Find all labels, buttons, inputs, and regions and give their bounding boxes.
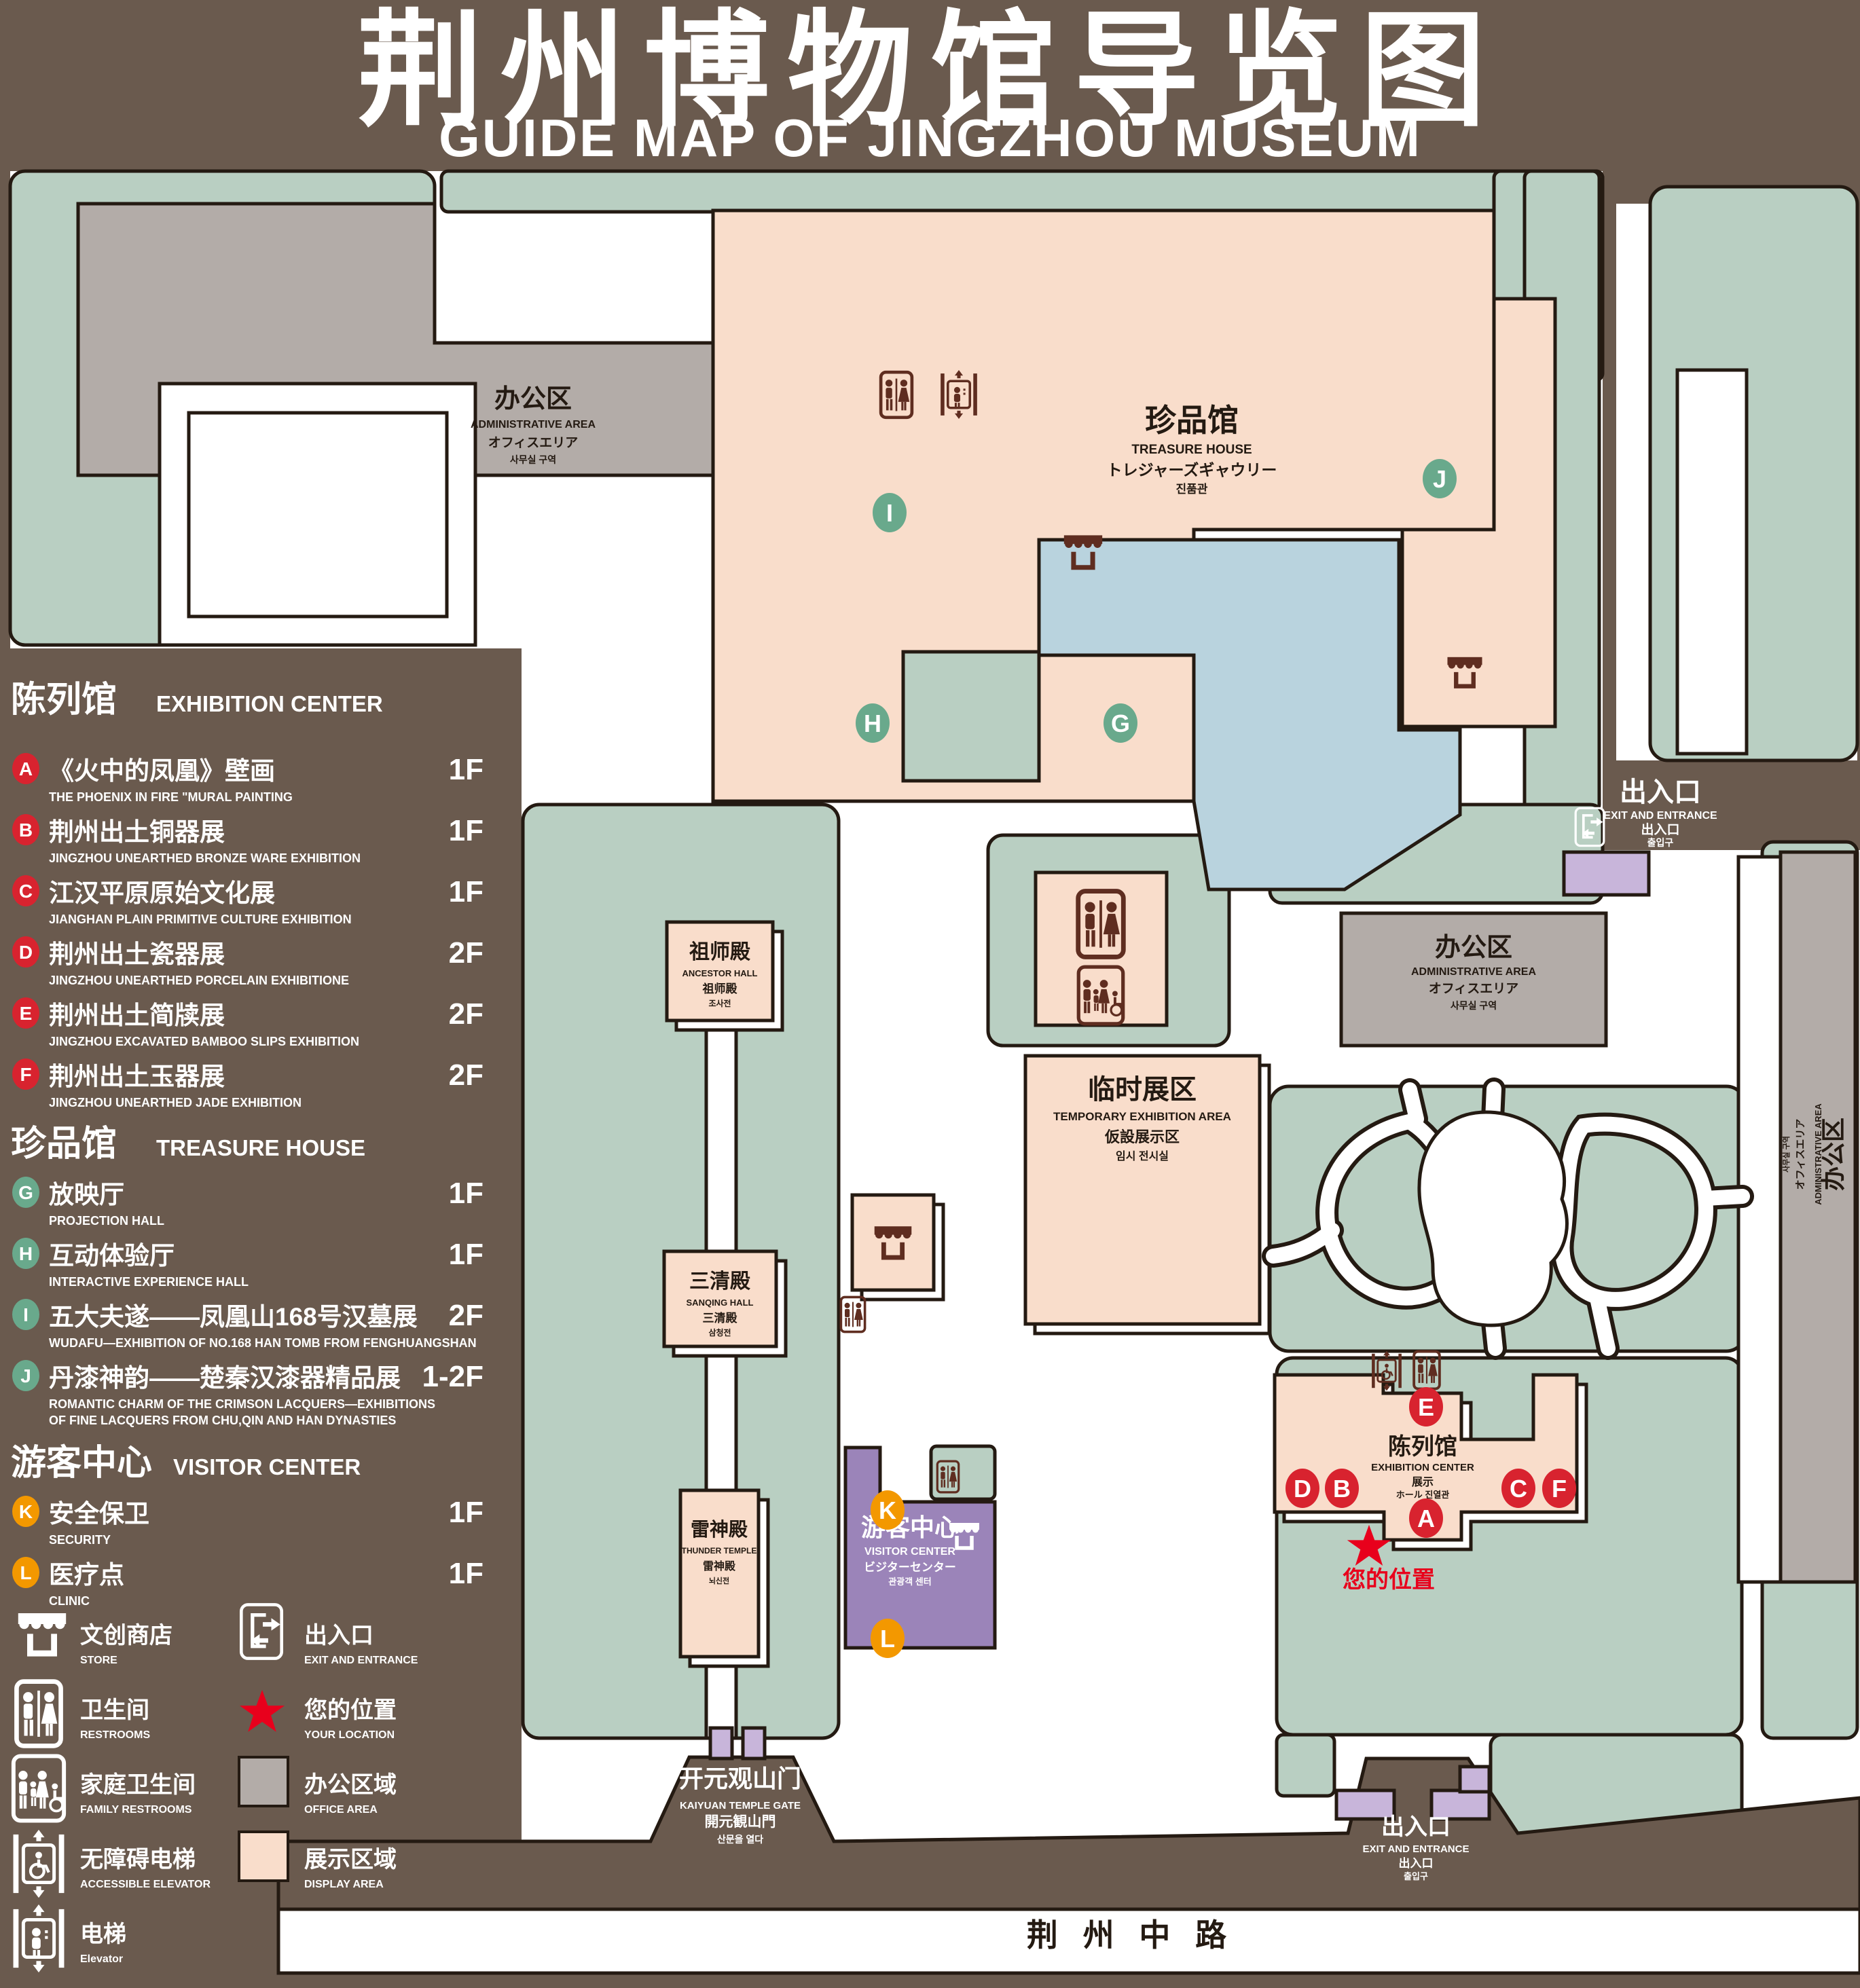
svg-text:卫生间: 卫生间 [80,1697,149,1723]
white-strip-right [1738,857,1781,1582]
legend-section-title-en: VISITOR CENTER [173,1454,361,1479]
svg-text:オフィスエリア: オフィスエリア [1795,1119,1806,1190]
road-label: 荆 州 中 路 [1027,1917,1235,1953]
svg-text:1F: 1F [449,875,484,908]
legend-item-L: L 医疗点 1F CLINIC [12,1557,484,1608]
svg-text:G: G [1111,710,1130,737]
svg-text:KAIYUAN TEMPLE GATE: KAIYUAN TEMPLE GATE [680,1800,801,1811]
admin-label-ja: オフィスエリア [488,436,579,450]
svg-text:B: B [19,820,33,841]
admin-label-ko: 사무실 구역 [510,454,556,465]
garden-pond [1419,1112,1567,1325]
svg-text:出入口: 出入口 [1641,822,1679,837]
svg-text:ホール 진열관: ホール 진열관 [1396,1490,1450,1500]
legend-section-title: 珍品馆 [11,1124,117,1164]
map-badge-A: A [1409,1498,1443,1538]
elevator-icon [14,1904,65,1972]
map-badge-C: C [1501,1469,1535,1508]
svg-text:办公区: 办公区 [1435,934,1512,962]
svg-text:DISPLAY AREA: DISPLAY AREA [304,1879,384,1890]
svg-text:CLINIC: CLINIC [49,1594,90,1608]
lawn-top-strip [441,171,1603,212]
svg-text:1F: 1F [449,814,484,847]
svg-text:B: B [1333,1475,1351,1503]
svg-text:2F: 2F [449,1059,484,1092]
svg-text:D: D [1294,1475,1311,1503]
svg-text:展示: 展示 [1412,1476,1434,1488]
svg-text:관광객 센터: 관광객 센터 [888,1577,931,1587]
your-location-label: 您的位置 [1343,1567,1435,1593]
svg-text:1F: 1F [449,1557,484,1590]
svg-text:뇌신전: 뇌신전 [709,1576,729,1585]
treasure-house-courtyard [903,652,1039,781]
legend-item-F: F 荆州出土玉器展 2F JINGZHOU UNEARTHED JADE EXH… [12,1059,484,1109]
svg-text:放映厅: 放映厅 [49,1181,124,1209]
svg-text:江汉平原原始文化展: 江汉平原原始文化展 [49,879,275,907]
svg-text:삼청전: 삼청전 [708,1327,731,1338]
exit-icon [241,1604,281,1658]
map-badge-F: F [1542,1469,1576,1508]
svg-text:C: C [1510,1475,1527,1503]
svg-text:三清殿: 三清殿 [689,1270,750,1293]
svg-text:办公区域: 办公区域 [304,1772,397,1798]
svg-text:JIANGHAN PLAIN PRIMITIVE CULTU: JIANGHAN PLAIN PRIMITIVE CULTURE EXHIBIT… [49,913,352,926]
svg-text:1F: 1F [449,1496,484,1529]
svg-text:ビジターセンター: ビジターセンター [864,1561,956,1574]
store-icon [18,1613,66,1653]
svg-text:您的位置: 您的位置 [304,1697,397,1723]
svg-text:開元観山門: 開元観山門 [705,1814,776,1830]
svg-text:RESTROOMS: RESTROOMS [80,1729,150,1741]
svg-text:YOUR LOCATION: YOUR LOCATION [304,1729,395,1741]
map-badge-G: G [1104,703,1137,743]
legend-item-K: K 安全保卫 1F SECURITY [12,1496,484,1547]
svg-text:출입구: 출입구 [1647,837,1674,848]
svg-text:ADMINISTRATIVE AREA: ADMINISTRATIVE AREA [1411,966,1536,978]
svg-text:산문을 열다: 산문을 열다 [717,1834,763,1845]
svg-text:雷神殿: 雷神殿 [691,1519,748,1540]
svg-text:ACCESSIBLE ELEVATOR: ACCESSIBLE ELEVATOR [80,1879,211,1890]
svg-text:I: I [23,1304,29,1325]
svg-text:EXHIBITION CENTER: EXHIBITION CENTER [1371,1462,1474,1473]
svg-text:1F: 1F [449,753,484,786]
svg-text:사무실 구역: 사무실 구역 [1781,1136,1791,1173]
svg-text:1-2F: 1-2F [422,1360,484,1393]
treasure-house-ja: トレジャーズギャウリー [1107,461,1277,479]
svg-text:F: F [20,1064,31,1085]
svg-text:JINGZHOU EXCAVATED BAMBOO SLIP: JINGZHOU EXCAVATED BAMBOO SLIPS EXHIBITI… [49,1035,359,1048]
svg-text:A: A [1417,1505,1435,1532]
restroom-icon [16,1682,60,1746]
svg-text:STORE: STORE [80,1655,117,1666]
svg-text:2F: 2F [449,997,484,1031]
gate-pillar-right [743,1728,765,1759]
svg-text:1F: 1F [449,1238,484,1271]
legend-item-B: B 荆州出土铜器展 1F JINGZHOU UNEARTHED BRONZE W… [12,814,484,865]
legend-item-C: C 江汉平原原始文化展 1F JIANGHAN PLAIN PRIMITIVE … [12,875,484,926]
svg-text:PROJECTION HALL: PROJECTION HALL [49,1214,164,1228]
svg-text:H: H [19,1243,33,1264]
svg-text:INTERACTIVE EXPERIENCE HALL: INTERACTIVE EXPERIENCE HALL [49,1275,249,1289]
location-star-icon [240,1690,285,1732]
svg-text:出入口: 出入口 [304,1623,373,1649]
map-badge-B: B [1325,1469,1359,1508]
accessible-elevator-icon [14,1830,65,1898]
svg-text:荆州出土铜器展: 荆州出土铜器展 [49,818,225,846]
legend-item-D: D 荆州出土瓷器展 2F JINGZHOU UNEARTHED PORCELAI… [12,936,484,987]
svg-text:사무실 구역: 사무실 구역 [1451,1000,1497,1011]
svg-text:安全保卫: 安全保卫 [49,1499,149,1528]
svg-text:2F: 2F [449,936,484,970]
svg-text:1F: 1F [449,1177,484,1210]
gate-pillar-left [710,1728,732,1759]
svg-text:无障碍电梯: 无障碍电梯 [80,1847,196,1873]
svg-text:临时展区: 临时展区 [1088,1075,1197,1105]
legend-section-title-en: EXHIBITION CENTER [156,691,383,716]
map-badge-E: E [1409,1387,1443,1426]
svg-text:荆州出土简牍展: 荆州出土简牍展 [49,1001,225,1029]
map-badge-J: J [1423,459,1457,498]
svg-text:家庭卫生间: 家庭卫生间 [80,1771,196,1798]
svg-text:L: L [880,1625,895,1653]
svg-text:임시 전시실: 임시 전시실 [1116,1150,1169,1162]
admin-building-right [1781,852,1855,1582]
svg-text:SECURITY: SECURITY [49,1533,111,1547]
svg-text:出入口: 出入口 [1620,777,1701,807]
svg-text:祖师殿: 祖师殿 [702,982,738,995]
svg-text:I: I [886,499,893,527]
map-badge-I: I [873,493,907,532]
svg-text:文创商店: 文创商店 [80,1623,172,1649]
display-area-swatch [239,1832,288,1881]
svg-text:办公区: 办公区 [1819,1118,1847,1191]
legend-item-H: H 互动体验厅 1F INTERACTIVE EXPERIENCE HALL [12,1238,484,1289]
svg-text:仮設展示区: 仮設展示区 [1104,1128,1180,1145]
svg-text:医疗点: 医疗点 [49,1561,124,1589]
legend-section-title: 陈列馆 [11,680,117,720]
top-exit-building [1564,852,1649,895]
white-building-top-left [160,384,475,645]
svg-text:K: K [19,1501,33,1522]
svg-text:オフィスエリア: オフィスエリア [1429,982,1519,996]
legend-item-G: G 放映厅 1F PROJECTION HALL [12,1177,484,1228]
svg-text:A: A [19,758,33,779]
treasure-house-ko: 진품관 [1176,483,1208,496]
svg-text:荆州出土玉器展: 荆州出土玉器展 [49,1063,225,1090]
svg-text:ROMANTIC CHARM OF THE CRIMSON: ROMANTIC CHARM OF THE CRIMSON LACQUERS—E… [49,1397,435,1411]
map-badge-H: H [856,703,890,743]
white-building-top-right [1677,370,1747,754]
svg-text:J: J [20,1365,31,1386]
svg-text:THE PHOENIX IN FIRE "MURAL PAI: THE PHOENIX IN FIRE "MURAL PAINTING [49,790,293,804]
admin-label-en: ADMINISTRATIVE AREA [471,419,596,430]
svg-text:K: K [879,1496,896,1524]
map-canvas: 荆州博物馆导览图 GUIDE MAP OF JINGZHOU MUSEUM [0,0,1860,1988]
lawn-bottom-left-small [1277,1735,1334,1796]
map-badge-K: K [871,1490,905,1530]
svg-text:JINGZHOU UNEARTHED BRONZE WARE: JINGZHOU UNEARTHED BRONZE WARE EXHIBITIO… [49,851,361,865]
svg-text:C: C [19,881,33,902]
legend-item-E: E 荆州出土简牍展 2F JINGZHOU EXCAVATED BAMBOO S… [12,997,484,1048]
svg-text:五大夫遂——凤凰山168号汉墓展: 五大夫遂——凤凰山168号汉墓展 [49,1303,418,1331]
svg-text:D: D [19,942,33,963]
svg-text:《火中的凤凰》壁画: 《火中的凤凰》壁画 [49,757,275,785]
svg-text:WUDAFU—EXHIBITION OF NO.168 HA: WUDAFU—EXHIBITION OF NO.168 HAN TOMB FRO… [49,1336,477,1350]
svg-text:SANQING HALL: SANQING HALL [687,1297,754,1308]
svg-text:ANCESTOR HALL: ANCESTOR HALL [682,968,758,978]
svg-text:陈列馆: 陈列馆 [1388,1434,1457,1460]
svg-text:L: L [20,1562,31,1583]
svg-text:EXIT AND ENTRANCE: EXIT AND ENTRANCE [1603,810,1717,822]
svg-text:2F: 2F [449,1299,484,1332]
svg-text:ADMINISTRATIVE AREA: ADMINISTRATIVE AREA [1813,1103,1823,1205]
svg-text:出入口: 出入口 [1399,1856,1434,1870]
family-restroom-icon [14,1756,65,1820]
svg-text:EXIT AND ENTRANCE: EXIT AND ENTRANCE [304,1655,418,1666]
treasure-house-en: TREASURE HOUSE [1131,443,1252,457]
legend-section-title: 游客中心 [11,1443,152,1483]
svg-text:开元观山门: 开元观山门 [679,1765,801,1792]
legend-item-J: J 丹漆神韵——楚秦汉漆器精品展 1-2F ROMANTIC CHARM OF … [12,1360,484,1427]
map-badge-L: L [871,1619,905,1658]
svg-text:出入口: 出入口 [1381,1814,1451,1840]
guide-map-poster: 荆州博物馆导览图 GUIDE MAP OF JINGZHOU MUSEUM [0,0,1860,1988]
svg-text:雷神殿: 雷神殿 [703,1560,736,1572]
svg-text:조사전: 조사전 [708,998,731,1008]
svg-text:G: G [18,1182,33,1203]
svg-text:OF FINE LACQUERS FROM CHU,QIN: OF FINE LACQUERS FROM CHU,QIN AND HAN DY… [49,1414,396,1427]
top-exit-label: 出入口 EXIT AND ENTRANCE 出入口 출입구 [1603,777,1717,848]
svg-text:VISITOR CENTER: VISITOR CENTER [864,1546,955,1558]
poster-subtitle: GUIDE MAP OF JINGZHOU MUSEUM [439,108,1422,168]
store-pavilion [852,1195,934,1290]
svg-text:互动体验厅: 互动体验厅 [49,1242,175,1270]
legend: 陈列馆 EXHIBITION CENTER A 《火中的凤凰》壁画 1F THE… [11,680,484,1972]
thunder-temple-building [680,1490,759,1657]
svg-text:Elevator: Elevator [80,1953,123,1965]
svg-text:JINGZHOU UNEARTHED JADE EXHIBI: JINGZHOU UNEARTHED JADE EXHIBITION [49,1096,302,1109]
treasure-house-zh: 珍品馆 [1145,403,1239,438]
map-badge-D: D [1285,1469,1319,1508]
legend-section-title-en: TREASURE HOUSE [156,1135,365,1160]
svg-text:祖师殿: 祖师殿 [689,941,750,963]
svg-text:三清殿: 三清殿 [703,1311,738,1325]
svg-text:OFFICE AREA: OFFICE AREA [304,1804,378,1816]
svg-text:E: E [20,1003,33,1024]
svg-text:JINGZHOU UNEARTHED PORCELAIN E: JINGZHOU UNEARTHED PORCELAIN EXHIBITIONE [49,974,349,987]
svg-text:EXIT AND ENTRANCE: EXIT AND ENTRANCE [1363,1843,1470,1855]
svg-text:F: F [1552,1475,1567,1503]
svg-text:J: J [1433,465,1446,493]
svg-text:TEMPORARY EXHIBITION AREA: TEMPORARY EXHIBITION AREA [1053,1110,1231,1123]
svg-text:丹漆神韵——楚秦汉漆器精品展: 丹漆神韵——楚秦汉漆器精品展 [49,1364,401,1392]
office-area-swatch [239,1757,288,1806]
svg-text:THUNDER TEMPLE: THUNDER TEMPLE [682,1546,757,1556]
svg-text:출입구: 출입구 [1404,1871,1428,1881]
legend-item-A: A 《火中的凤凰》壁画 1F THE PHOENIX IN FIRE "MURA… [12,753,484,804]
svg-text:展示区域: 展示区域 [304,1847,397,1873]
bottom-exit-building-right-upper [1460,1767,1489,1792]
svg-text:荆州出土瓷器展: 荆州出土瓷器展 [49,940,225,968]
svg-text:H: H [864,710,881,737]
svg-text:FAMILY RESTROOMS: FAMILY RESTROOMS [80,1804,192,1816]
legend-item-I: I 五大夫遂——凤凰山168号汉墓展 2F WUDAFU—EXHIBITION … [12,1299,484,1350]
svg-text:电梯: 电梯 [80,1921,126,1947]
admin-label-zh: 办公区 [494,385,572,413]
svg-text:E: E [1418,1393,1434,1421]
